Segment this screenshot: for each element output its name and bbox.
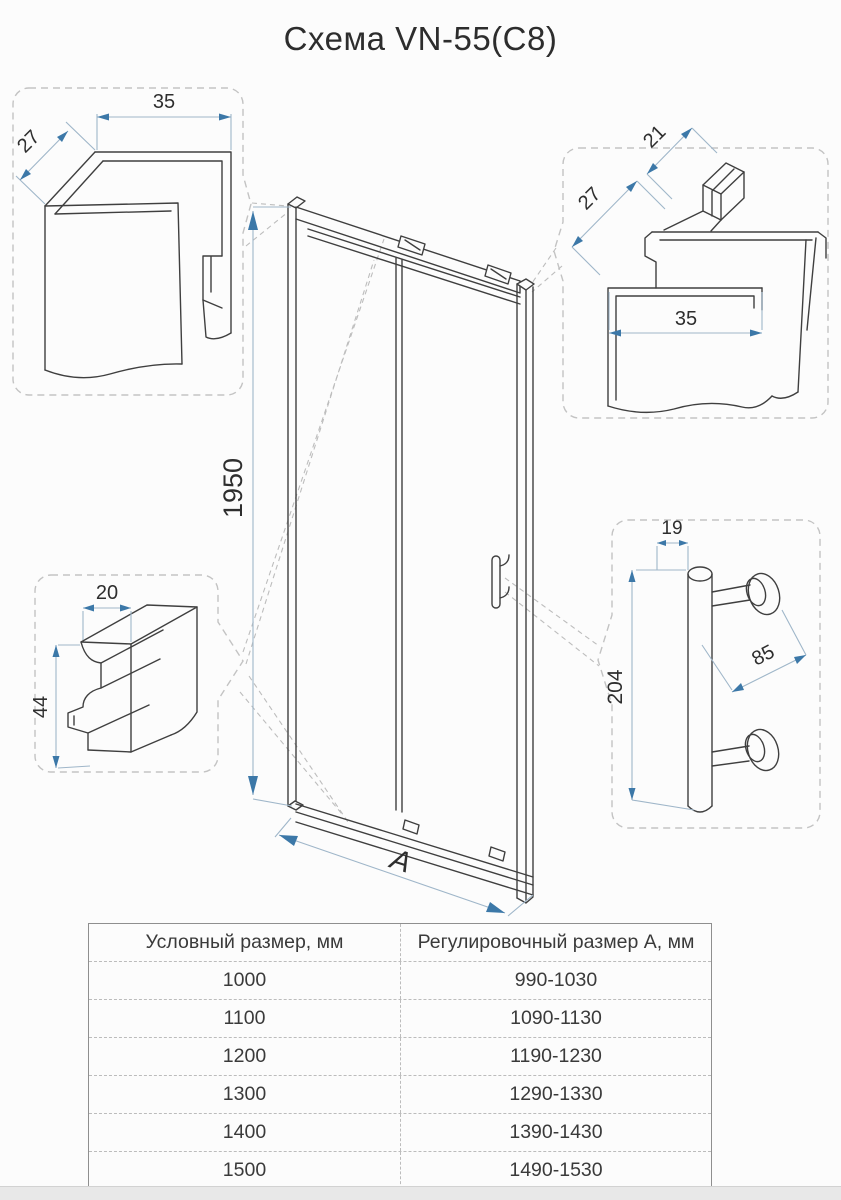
size-table: Условный размер, мм Регулировочный разме… xyxy=(88,923,712,1190)
table-cell: 1190-1230 xyxy=(400,1038,711,1075)
dim-door-height: 1950 xyxy=(218,207,292,806)
schematic-page: Схема VN-55(C8) xyxy=(0,0,841,1200)
table-cell: 1490-1530 xyxy=(400,1152,711,1189)
table-cell: 1500 xyxy=(89,1152,400,1189)
dim-label-44: 44 xyxy=(30,696,52,718)
dim-label-35-top-right: 35 xyxy=(675,308,697,330)
wall-profile-top-left-sketch xyxy=(45,152,231,378)
dim-label-35-top-left: 35 xyxy=(153,91,175,113)
table-row: 1000 990-1030 xyxy=(89,961,711,999)
table-row: 1500 1490-1530 xyxy=(89,1151,711,1189)
callout-box-handle xyxy=(598,520,820,828)
table-header-adjust: Регулировочный размер А, мм xyxy=(400,924,711,961)
table-cell: 1290-1330 xyxy=(400,1076,711,1113)
dim-label-1950: 1950 xyxy=(218,458,248,518)
table-row: 1200 1190-1230 xyxy=(89,1037,711,1075)
table-cell: 1100 xyxy=(89,1000,400,1037)
table-row: 1400 1390-1430 xyxy=(89,1113,711,1151)
wall-profile-top-right-sketch xyxy=(608,163,826,412)
callout-box-top-left xyxy=(13,88,251,395)
roller-carriage xyxy=(398,236,425,255)
dim-label-204: 204 xyxy=(604,669,627,704)
dim-label-85: 85 xyxy=(748,641,778,671)
bottom-rail-profile-sketch xyxy=(68,605,197,752)
footer-bar xyxy=(0,1186,841,1200)
dim-label-A: A xyxy=(385,843,415,880)
dim-mid-left: 20 44 xyxy=(30,582,131,768)
dim-label-27-top-right: 27 xyxy=(574,183,605,214)
door-drawing xyxy=(288,197,534,903)
left-bar-cap xyxy=(288,197,305,208)
table-cell: 1390-1430 xyxy=(400,1114,711,1151)
leader-lines xyxy=(240,203,599,822)
callout-boxes xyxy=(13,88,828,828)
table-row: 1300 1290-1330 xyxy=(89,1075,711,1113)
callout-box-mid-left xyxy=(35,575,243,772)
bottom-guide xyxy=(403,820,419,834)
bottom-guide xyxy=(489,847,505,861)
table-header-row: Условный размер, мм Регулировочный разме… xyxy=(89,924,711,961)
table-cell: 1000 xyxy=(89,962,400,999)
dim-door-width: A xyxy=(275,818,533,916)
table-cell: 990-1030 xyxy=(400,962,711,999)
dim-label-19: 19 xyxy=(661,518,682,539)
dim-top-left: 35 27 xyxy=(13,91,231,204)
table-row: 1100 1090-1130 xyxy=(89,999,711,1037)
table-cell: 1090-1130 xyxy=(400,1000,711,1037)
table-cell: 1200 xyxy=(89,1038,400,1075)
table-cell: 1300 xyxy=(89,1076,400,1113)
dim-label-20: 20 xyxy=(96,582,118,604)
table-cell: 1400 xyxy=(89,1114,400,1151)
door-handle xyxy=(492,555,509,608)
dim-label-27-top-left: 27 xyxy=(13,126,44,157)
table-header-nominal: Условный размер, мм xyxy=(89,924,400,961)
